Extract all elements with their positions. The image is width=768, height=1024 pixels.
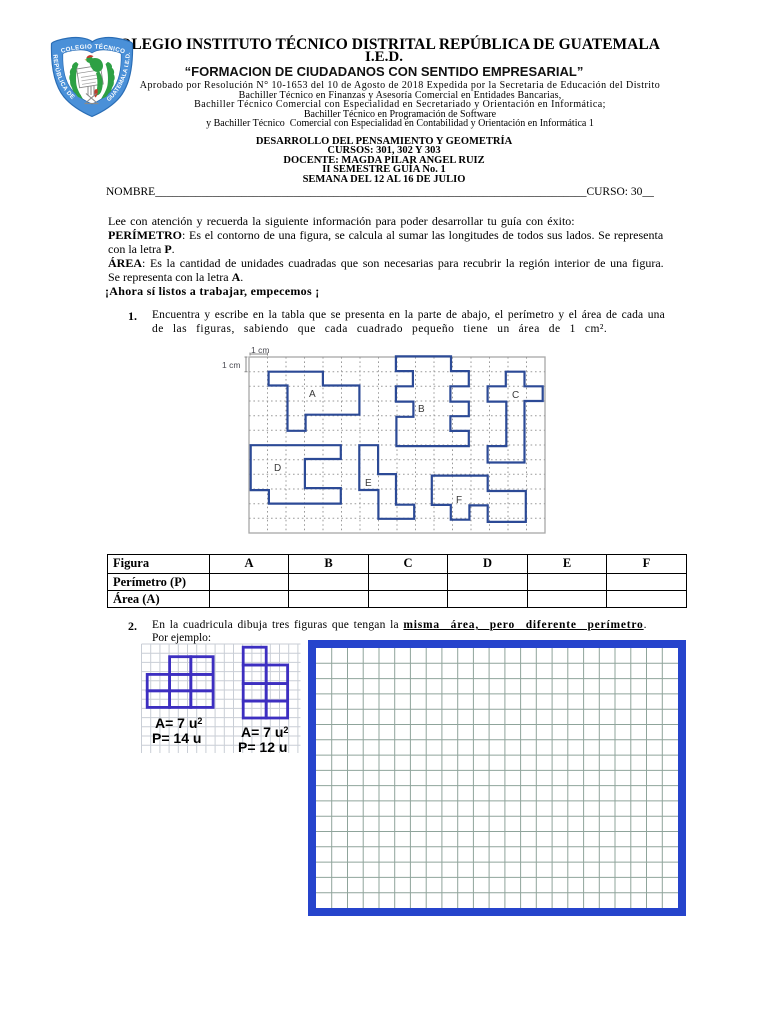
- svg-text:C: C: [512, 390, 519, 401]
- svg-text:F: F: [456, 495, 462, 506]
- svg-text:A: A: [309, 389, 316, 400]
- svg-text:E: E: [365, 478, 372, 489]
- svg-text:D: D: [274, 463, 281, 474]
- svg-text:B: B: [418, 404, 425, 415]
- svg-text:1 cm: 1 cm: [222, 360, 240, 370]
